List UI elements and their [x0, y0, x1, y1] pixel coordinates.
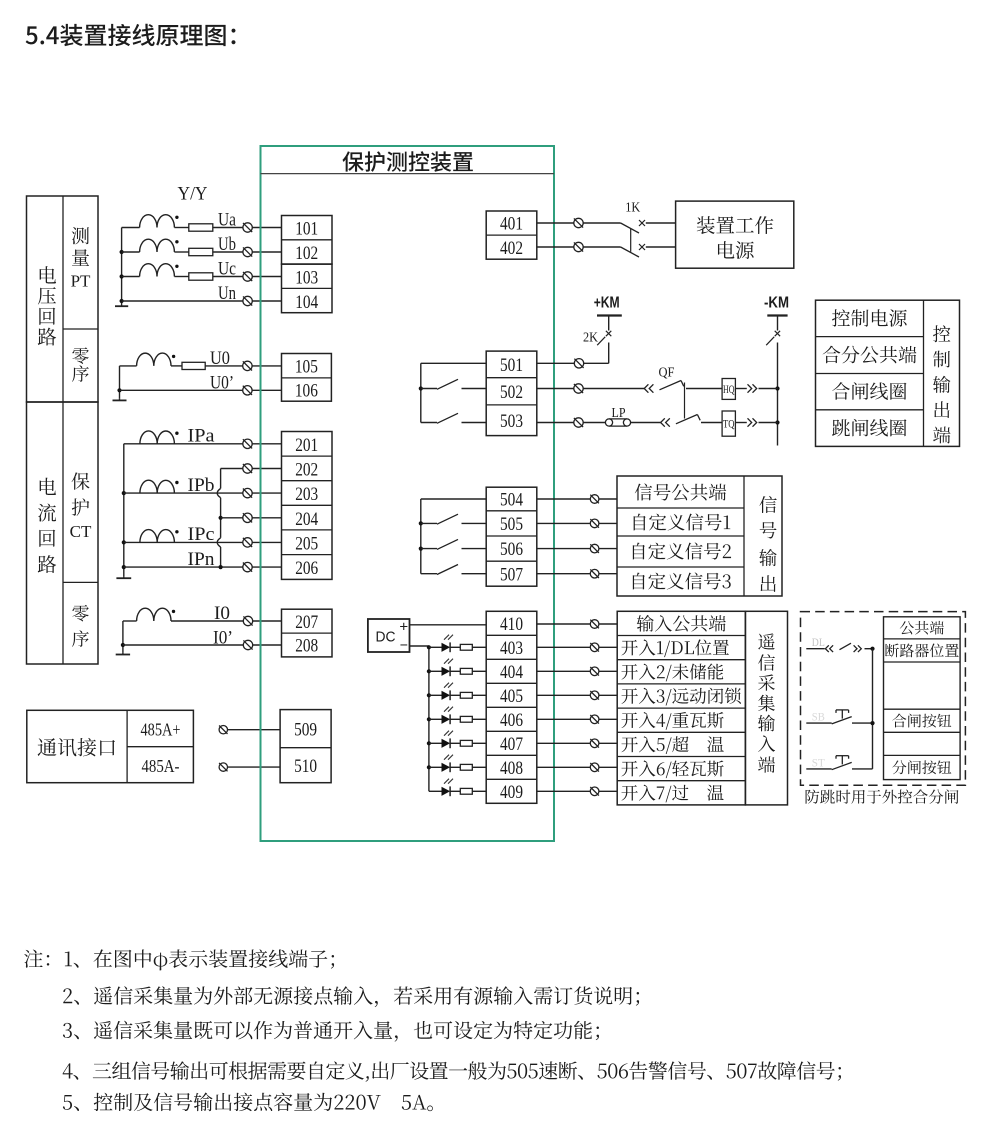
svg-text:505: 505 — [500, 514, 523, 535]
svg-text:402: 402 — [500, 238, 523, 259]
svg-text:401: 401 — [500, 214, 523, 235]
svg-text:403: 403 — [500, 638, 523, 659]
svg-text:IPc: IPc — [188, 524, 215, 545]
svg-text:DC: DC — [376, 630, 396, 646]
svg-text:PT: PT — [71, 271, 91, 290]
svg-text:408: 408 — [500, 758, 523, 779]
svg-text:CT: CT — [70, 522, 92, 541]
svg-text:HQ: HQ — [723, 382, 735, 396]
svg-text:507: 507 — [500, 564, 523, 585]
svg-text:IPn: IPn — [188, 549, 215, 570]
svg-text:106: 106 — [295, 380, 318, 401]
svg-text:-KM: -KM — [764, 294, 789, 311]
svg-text:−: − — [400, 637, 408, 653]
svg-text:LP: LP — [612, 406, 626, 421]
svg-text:410: 410 — [500, 614, 523, 635]
svg-text:Ub: Ub — [218, 234, 236, 255]
svg-text:SB: SB — [812, 710, 825, 724]
svg-text:105: 105 — [295, 357, 318, 378]
svg-text:2K: 2K — [583, 330, 598, 345]
svg-text:502: 502 — [500, 382, 523, 403]
svg-text:101: 101 — [295, 219, 318, 240]
svg-text:204: 204 — [295, 509, 318, 530]
svg-text:205: 205 — [295, 533, 318, 554]
svg-text:IPb: IPb — [188, 475, 215, 496]
svg-text:102: 102 — [295, 243, 318, 264]
svg-text:201: 201 — [295, 435, 318, 456]
svg-text:DL: DL — [812, 635, 825, 649]
svg-text:IPa: IPa — [188, 425, 216, 446]
svg-text:202: 202 — [295, 460, 318, 481]
svg-text:Ua: Ua — [218, 210, 236, 231]
svg-text:203: 203 — [295, 484, 318, 505]
svg-text:I0: I0 — [214, 603, 230, 624]
svg-text:506: 506 — [500, 539, 523, 560]
svg-text:1K: 1K — [625, 200, 640, 215]
svg-text:U0: U0 — [210, 348, 230, 369]
svg-text:206: 206 — [295, 558, 318, 579]
svg-text:406: 406 — [500, 710, 523, 731]
svg-text:503: 503 — [500, 411, 523, 432]
svg-text:404: 404 — [500, 662, 523, 683]
svg-text:+KM: +KM — [594, 294, 620, 311]
svg-text:U0’: U0’ — [210, 373, 234, 394]
svg-text:TQ: TQ — [723, 417, 735, 431]
svg-text:485A+: 485A+ — [141, 719, 181, 739]
svg-text:405: 405 — [500, 686, 523, 707]
svg-text:103: 103 — [295, 267, 318, 288]
svg-text:Un: Un — [218, 283, 236, 304]
svg-text:QF: QF — [659, 365, 675, 380]
svg-text:509: 509 — [294, 719, 317, 740]
svg-text:+: + — [399, 619, 408, 636]
svg-text:208: 208 — [295, 636, 318, 657]
svg-text:Y/Y: Y/Y — [178, 184, 208, 205]
svg-text:I0’: I0’ — [213, 628, 233, 649]
svg-text:409: 409 — [500, 782, 523, 803]
svg-text:ST: ST — [812, 756, 826, 770]
svg-text:407: 407 — [500, 734, 523, 755]
svg-text:207: 207 — [295, 612, 318, 633]
svg-text:485A-: 485A- — [142, 756, 180, 776]
svg-text:501: 501 — [500, 355, 523, 376]
svg-text:510: 510 — [294, 756, 317, 777]
svg-text:504: 504 — [500, 490, 523, 511]
svg-text:104: 104 — [295, 292, 318, 313]
svg-text:Uc: Uc — [218, 259, 236, 280]
